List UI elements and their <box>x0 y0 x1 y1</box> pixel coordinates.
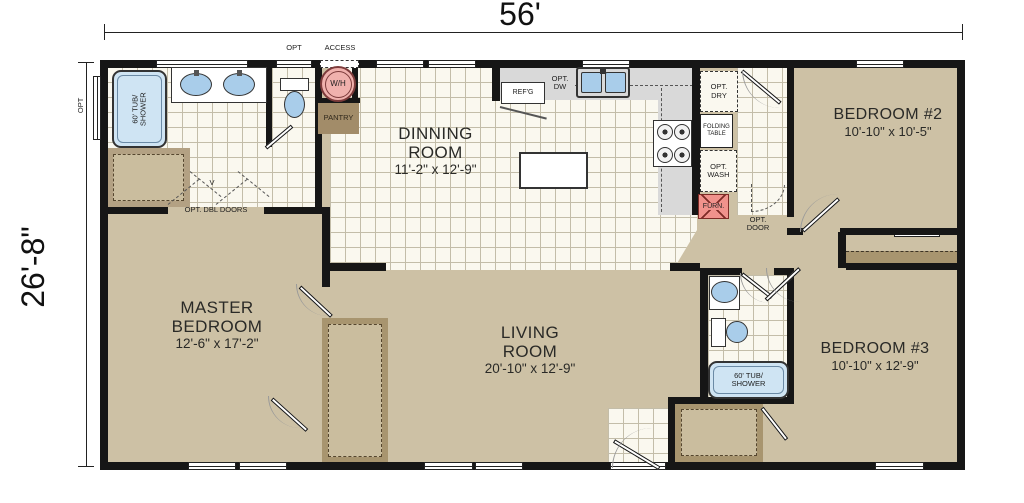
folding-table-label: FOLDINGTABLE <box>703 124 730 137</box>
kitchen-island <box>519 152 588 189</box>
master-tub-label: 60' TUB/SHOWER <box>131 92 148 126</box>
pantry: PANTRY <box>318 103 359 134</box>
window-opt-toilet <box>276 60 312 68</box>
opt-window-left <box>93 76 101 140</box>
furnace: FURN. <box>698 194 729 219</box>
floor-plan: 56' 26'-8" <box>0 0 1024 503</box>
stove <box>653 120 692 167</box>
hallbath-tub: 60' TUB/SHOWER <box>708 361 789 399</box>
refrigerator-label: REF'G <box>513 89 534 97</box>
refrigerator: REF'G <box>501 82 545 104</box>
toilet2-bowl <box>726 321 748 343</box>
wall-left <box>100 60 108 470</box>
sink-basin-right <box>605 72 626 93</box>
closet-shelf-line <box>681 409 757 456</box>
window-master-left <box>188 462 236 470</box>
kitchen-sink <box>576 67 630 98</box>
wall-utility-right <box>787 67 794 217</box>
sink-basin-left <box>581 72 602 93</box>
master-bedroom-label: MASTER BEDROOM 12'-6" x 17'-2" <box>137 298 297 352</box>
window-bedroom3 <box>875 462 924 470</box>
opt-washer-label: OPT.WASH <box>707 163 729 180</box>
opt-dryer-label: OPT.DRY <box>711 83 728 100</box>
wall-stub-living-right <box>670 263 700 271</box>
top-dimension-tick-left <box>104 24 105 40</box>
burner <box>674 147 690 163</box>
faucet-icon <box>194 70 199 76</box>
master-bath-closet <box>107 148 190 207</box>
wall-entry-closet <box>668 403 675 463</box>
wall-bedroom3-top <box>846 263 958 270</box>
opt-toilet-window-label: OPT <box>279 44 309 52</box>
closet-shelf-line <box>113 154 184 201</box>
window-master-right <box>239 462 287 470</box>
living-room-label: LIVING ROOM 20'-10" x 12'-9" <box>449 323 611 377</box>
opt-dryer: OPT.DRY <box>700 71 738 112</box>
window-dining-right <box>428 60 476 68</box>
wall-fridge-stub <box>492 67 500 101</box>
wh-inner-ring <box>325 71 352 98</box>
wall-hall-stub <box>838 232 846 268</box>
faucet-icon <box>237 70 242 76</box>
opt-dbl-doors-label: OPT. DBL DOORS <box>160 206 272 214</box>
wall-bedroom2-bottom-right <box>840 228 958 235</box>
opt-door-label: OPT.DOOR <box>737 216 779 233</box>
burner <box>657 147 673 163</box>
bedroom2-label: BEDROOM #2 10'-10" x 10'-5" <box>808 106 968 140</box>
vanity-sink-left <box>180 73 212 96</box>
vanity-sink-right <box>223 73 255 96</box>
left-dimension-tick-top <box>78 62 94 63</box>
burner <box>657 124 673 140</box>
closet-shelf-line <box>328 324 382 457</box>
master-walkin-closet <box>322 318 388 463</box>
wall-master-living <box>322 207 330 287</box>
opt-dishwasher-label: OPT.DW <box>545 75 575 92</box>
dining-room-label: DINNING ROOM 11'-2" x 12'-9" <box>363 124 508 178</box>
water-heater: W/H <box>320 66 356 102</box>
tub-inner-line <box>713 366 784 394</box>
bedroom3-label: BEDROOM #3 10'-10" x 12'-9" <box>795 340 955 374</box>
top-dimension-tick-right <box>962 24 963 40</box>
v-mark: V <box>206 179 218 187</box>
hallbath-sink <box>711 281 738 303</box>
access-label: ACCESS <box>318 44 362 52</box>
folding-table: FOLDINGTABLE <box>700 114 733 148</box>
left-dimension-tick-bottom <box>78 466 94 467</box>
height-dimension: 26'-8" <box>15 205 49 329</box>
toilet1-bowl <box>284 91 305 118</box>
wall-stub-living-left <box>322 263 386 271</box>
wall-hallbath-left <box>700 268 708 404</box>
opt-washer: OPT.WASH <box>700 150 737 192</box>
window-dining-left <box>376 60 424 68</box>
bedroom3-closet <box>675 403 763 462</box>
toilet1-tank <box>280 78 309 91</box>
window-living-left <box>424 462 473 470</box>
toilet2-tank <box>711 318 726 347</box>
faucet-icon <box>600 69 606 74</box>
burner <box>674 124 690 140</box>
master-tub: 60' TUB/SHOWER <box>112 70 167 148</box>
pantry-label: PANTRY <box>324 114 354 122</box>
opt-left-window-label: OPT <box>77 99 85 113</box>
wall-kitchen-utility <box>692 67 700 215</box>
width-dimension: 56' <box>460 0 580 33</box>
left-dimension-line <box>86 63 87 467</box>
window-living-right <box>475 462 523 470</box>
furnace-label: FURN. <box>702 203 725 211</box>
window-bedroom2 <box>856 60 904 68</box>
